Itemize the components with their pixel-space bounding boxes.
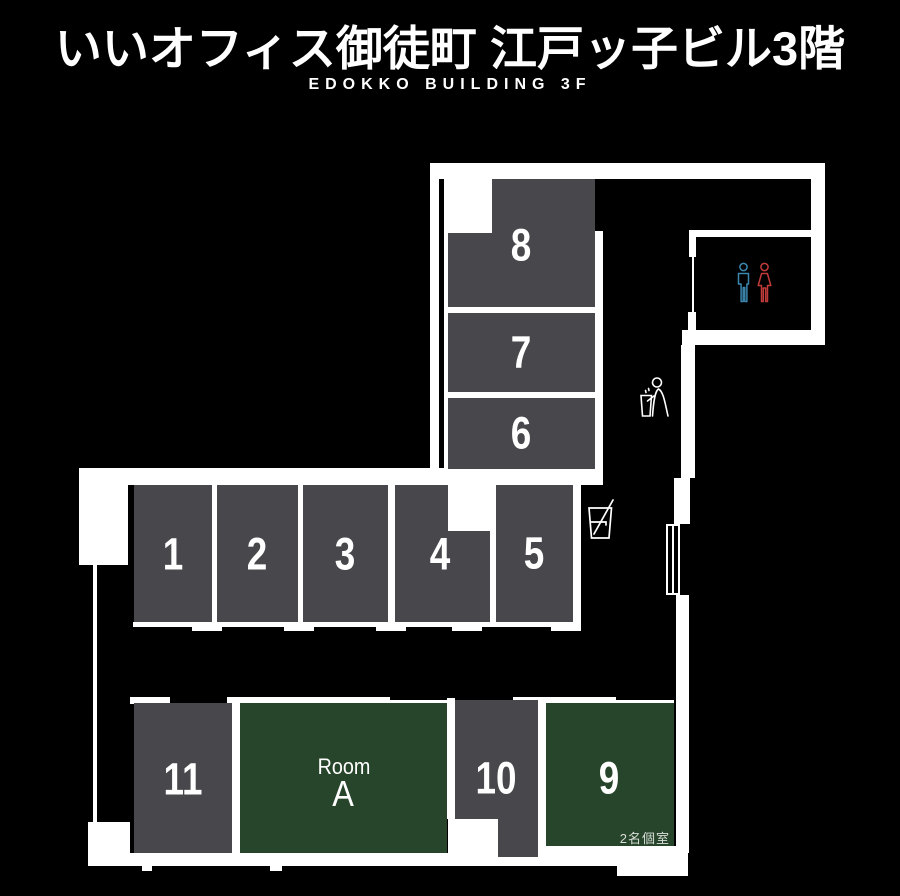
page-title: いいオフィス御徒町 江戸ッ子ビル3階: [0, 10, 900, 79]
wall-left-thin-line: [93, 565, 97, 822]
wall-right-mid: [674, 478, 690, 524]
floor-plan-canvas: いいオフィス御徒町 江戸ッ子ビル3階 EDOKKO BUILDING 3F: [0, 0, 900, 896]
room-10-extension: [498, 819, 538, 857]
room-11-label: 11: [163, 757, 202, 802]
men-toilet-icon: [739, 263, 749, 301]
room-2-label: 2: [247, 532, 268, 577]
toilet-door-leaf: [692, 257, 694, 312]
room-8: [492, 179, 595, 307]
toilet-wall-stub-bottom: [688, 312, 696, 330]
room-8-label: 8: [511, 223, 532, 268]
entry-block-bottom-left: [88, 822, 130, 866]
room-4-label: 4: [430, 532, 451, 577]
room-1-label: 1: [163, 532, 184, 577]
wall-right-top: [811, 179, 825, 345]
wall-top-band: [430, 163, 825, 179]
trash-disposal-icon: [638, 375, 676, 418]
door-tab-room3: [376, 622, 406, 631]
wall-band-above-rooms: [79, 468, 603, 485]
room-4-extension: [448, 531, 490, 622]
room-5-label: 5: [524, 531, 545, 576]
separator-10-9: [538, 699, 546, 866]
door-tab-room1: [192, 622, 222, 631]
wall-right-of-room5: [573, 485, 581, 630]
sliding-door-symbol: [666, 524, 680, 595]
women-toilet-icon: [758, 263, 771, 301]
entry-block-bottom-right: [617, 846, 688, 876]
gap-rooms-3-4: [388, 485, 395, 622]
toilet-wall-stub-top: [689, 237, 696, 257]
room-3-label: 3: [335, 532, 356, 577]
entry-area-left: [79, 485, 128, 565]
drink-cup-icon: [585, 494, 617, 544]
separator-A-10: [447, 698, 455, 819]
wall-bottom-band: [128, 853, 688, 866]
tiny-tab-room11: [142, 865, 152, 871]
notch-rooms-4-5: [448, 485, 496, 531]
door-divider: [672, 526, 674, 593]
room-8-extension: [448, 233, 492, 307]
toilet-wall-top: [689, 230, 811, 237]
door-tab-room4: [452, 622, 482, 631]
room-10-label: 10: [475, 756, 516, 801]
room-7-label: 7: [511, 330, 532, 375]
toilet-wall-bottom-band: [682, 330, 825, 345]
wall-right-lower: [676, 595, 689, 853]
wall-right-upper: [681, 345, 695, 478]
separator-11-A: [232, 697, 240, 866]
restroom-icon: [733, 262, 775, 306]
door-tab-room2: [284, 622, 314, 631]
room-9-label: 9: [599, 756, 620, 801]
tiny-tab-roomA: [270, 865, 282, 871]
room-A-label: A: [332, 776, 354, 812]
room-9-note: 2名個室: [550, 828, 670, 847]
page-subtitle: EDOKKO BUILDING 3F: [0, 76, 900, 94]
room-6-label: 6: [511, 411, 532, 456]
wall-upper-left-strip: [430, 179, 439, 468]
door-tab-room5: [551, 622, 581, 631]
